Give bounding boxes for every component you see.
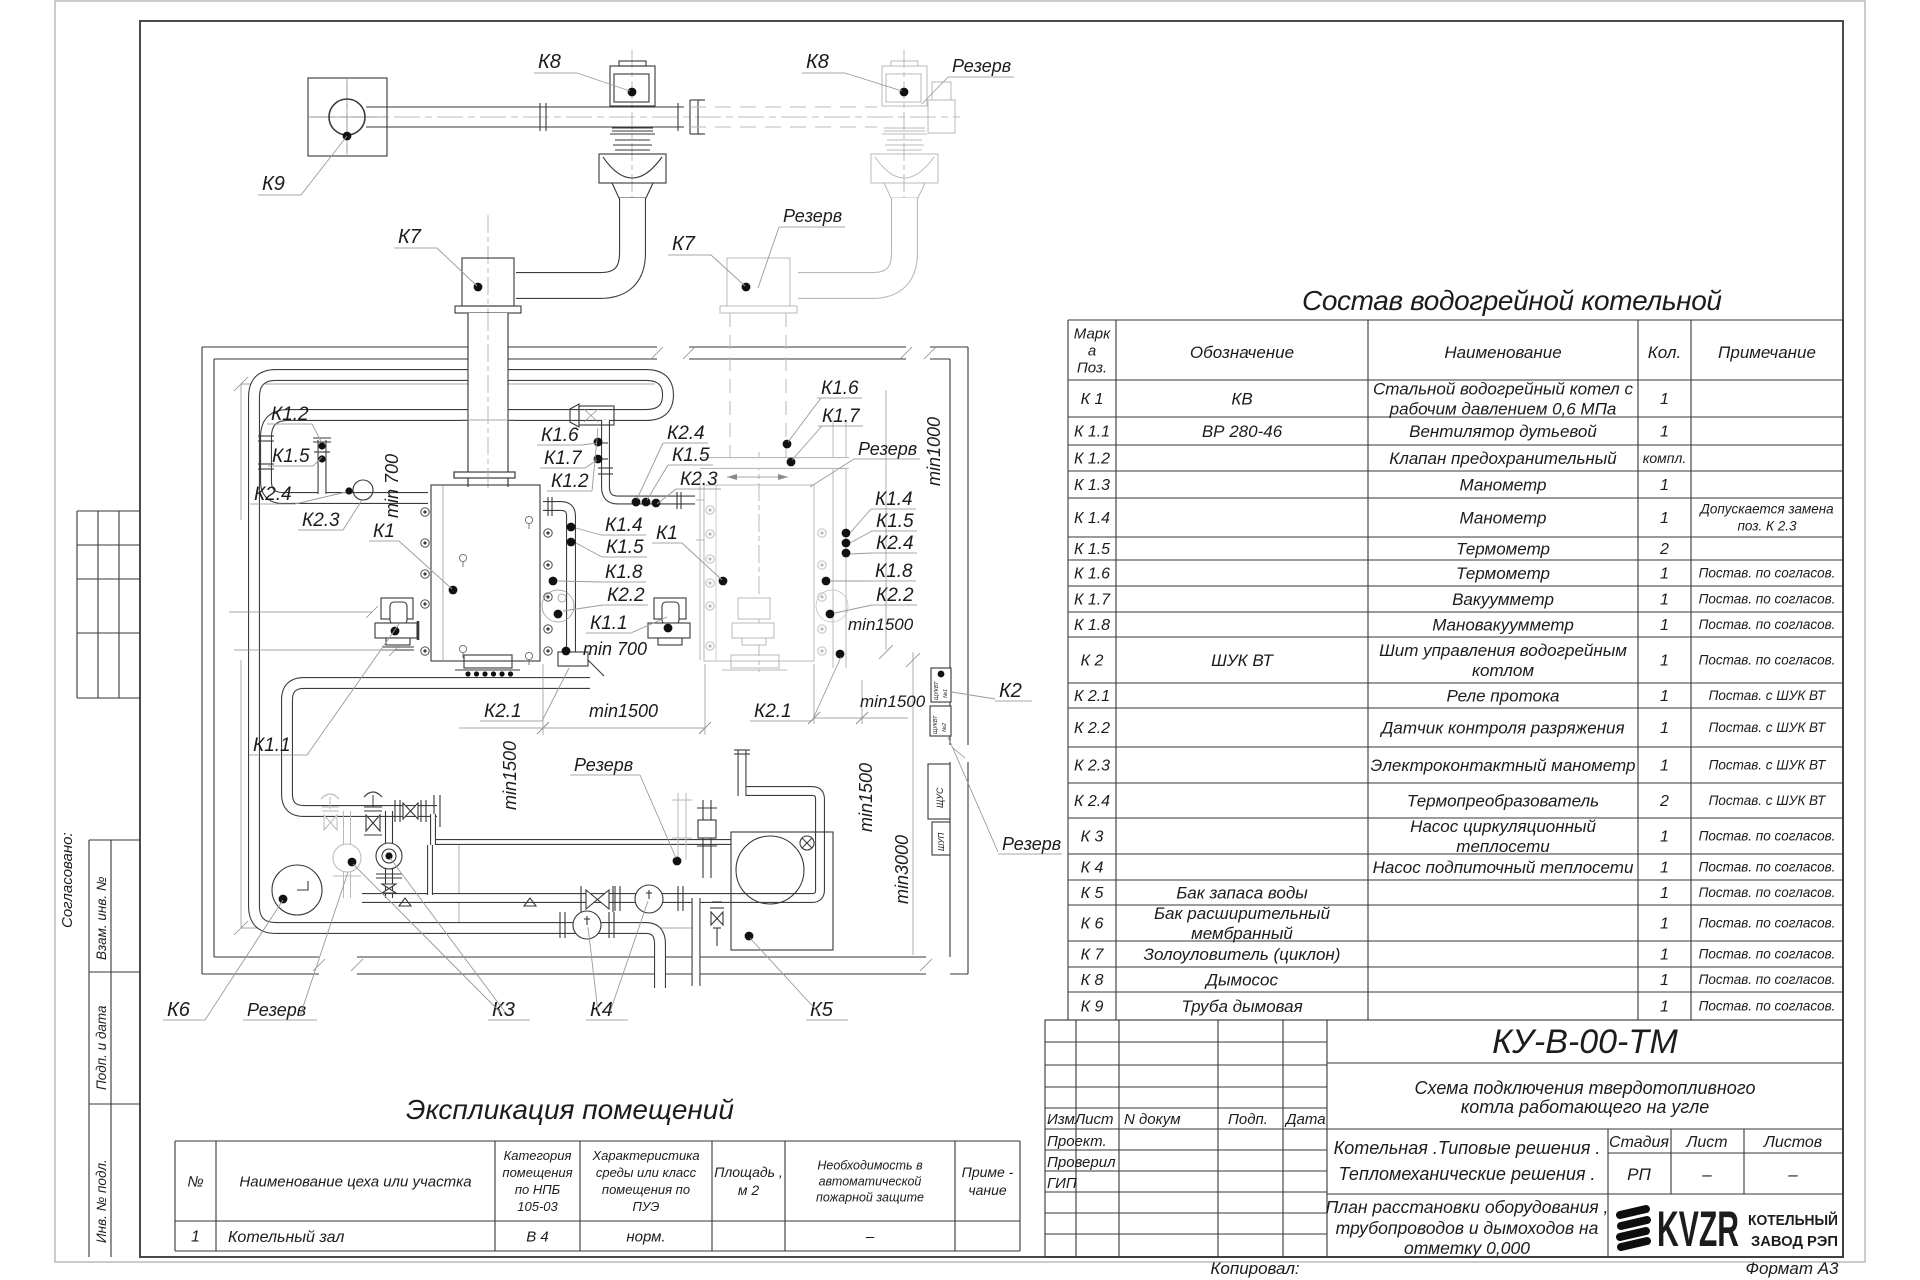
svg-text:Необходимость в: Необходимость в	[817, 1158, 923, 1172]
svg-text:1: 1	[1660, 510, 1669, 527]
svg-text:К 6: К 6	[1081, 916, 1104, 933]
svg-text:ЩУКВТ: ЩУКВТ	[933, 715, 939, 734]
svg-text:ЩУКВТ: ЩУКВТ	[934, 681, 940, 700]
svg-text:котлом: котлом	[1472, 661, 1534, 680]
svg-text:КВ: КВ	[1231, 389, 1252, 408]
svg-text:2: 2	[1659, 541, 1669, 558]
svg-text:Манометр: Манометр	[1460, 475, 1547, 494]
svg-text:Термометр: Термометр	[1456, 564, 1550, 583]
svg-text:Постав. по согласов.: Постав. по согласов.	[1699, 860, 1836, 875]
svg-text:Проверил: Проверил	[1047, 1154, 1116, 1171]
svg-text:К 8: К 8	[1081, 972, 1104, 989]
svg-text:min1500: min1500	[860, 692, 926, 711]
svg-text:трубопроводов и дымоходов на: трубопроводов и дымоходов на	[1336, 1218, 1599, 1238]
svg-text:К2.4: К2.4	[876, 533, 914, 554]
svg-text:1: 1	[1660, 999, 1669, 1016]
svg-text:Тепломеханические решения .: Тепломеханические решения .	[1339, 1164, 1596, 1184]
svg-text:К 2.4: К 2.4	[1074, 793, 1110, 810]
svg-text:1: 1	[1660, 947, 1669, 964]
svg-text:среды или класс: среды или класс	[596, 1165, 697, 1180]
svg-text:1: 1	[1660, 592, 1669, 609]
svg-text:КУ-В-00-ТМ: КУ-В-00-ТМ	[1492, 1023, 1678, 1061]
svg-text:Характеристика: Характеристика	[591, 1148, 699, 1163]
svg-text:пожарной защите: пожарной защите	[816, 1190, 924, 1204]
svg-text:К 2.3: К 2.3	[1074, 758, 1110, 775]
svg-text:К2.4: К2.4	[254, 484, 292, 505]
svg-text:Вакуумметр: Вакуумметр	[1452, 590, 1554, 609]
svg-text:1: 1	[1660, 424, 1669, 441]
svg-text:Постав. с ШУК ВТ: Постав. с ШУК ВТ	[1709, 758, 1828, 773]
svg-text:1: 1	[1660, 860, 1669, 877]
svg-text:Постав. по согласов.: Постав. по согласов.	[1699, 566, 1836, 581]
svg-text:Экспликация помещений: Экспликация помещений	[406, 1094, 734, 1125]
svg-text:–: –	[865, 1228, 875, 1245]
svg-text:К 5: К 5	[1081, 885, 1104, 902]
svg-text:мембранный: мембранный	[1191, 924, 1293, 943]
svg-text:Приме -: Приме -	[962, 1164, 1014, 1180]
svg-text:котла работающего на угле: котла работающего на угле	[1461, 1097, 1710, 1117]
svg-text:min1000: min1000	[924, 417, 944, 486]
svg-text:1: 1	[1660, 617, 1669, 634]
svg-text:Листов: Листов	[1763, 1134, 1822, 1151]
svg-text:а: а	[1088, 342, 1096, 359]
svg-text:К2: К2	[999, 680, 1022, 702]
svg-text:Резерв: Резерв	[1002, 834, 1061, 854]
svg-text:Лист: Лист	[1685, 1134, 1727, 1151]
svg-text:105-03: 105-03	[517, 1199, 558, 1214]
svg-text:Постав. с ШУК ВТ: Постав. с ШУК ВТ	[1709, 793, 1828, 808]
svg-text:К7: К7	[398, 226, 422, 248]
svg-text:К2.4: К2.4	[667, 423, 705, 444]
svg-text:К 1.3: К 1.3	[1074, 477, 1110, 494]
svg-text:К 2.1: К 2.1	[1074, 688, 1110, 705]
svg-text:Кол.: Кол.	[1648, 343, 1681, 362]
svg-text:2: 2	[1659, 793, 1669, 810]
svg-text:помещения по: помещения по	[602, 1182, 690, 1197]
svg-text:К5: К5	[810, 999, 834, 1021]
svg-text:К2.1: К2.1	[484, 701, 522, 722]
svg-text:Подп. и дата: Подп. и дата	[94, 1005, 109, 1090]
svg-text:К 2: К 2	[1081, 653, 1104, 670]
svg-text:min 700: min 700	[583, 639, 647, 659]
svg-text:К 9: К 9	[1081, 999, 1104, 1016]
svg-text:min 700: min 700	[382, 454, 402, 518]
svg-text:К1.2: К1.2	[551, 471, 589, 492]
svg-text:Постав. по согласов.: Постав. по согласов.	[1699, 885, 1836, 900]
svg-text:Подп.: Подп.	[1228, 1111, 1268, 1128]
svg-text:1: 1	[1660, 916, 1669, 933]
svg-text:Манометр: Манометр	[1460, 508, 1547, 527]
svg-text:№2: №2	[942, 723, 948, 732]
svg-text:поз. К 2.3: поз. К 2.3	[1737, 519, 1797, 534]
svg-text:1: 1	[1660, 688, 1669, 705]
svg-text:Проект.: Проект.	[1047, 1133, 1107, 1150]
svg-text:К1.5: К1.5	[876, 511, 914, 532]
svg-text:Допускается замена: Допускается замена	[1698, 502, 1834, 517]
svg-text:К 3: К 3	[1081, 829, 1104, 846]
svg-text:Наименование: Наименование	[1444, 343, 1561, 362]
svg-text:1: 1	[191, 1229, 200, 1246]
svg-text:Котельный зал: Котельный зал	[228, 1229, 344, 1246]
svg-text:Резерв: Резерв	[574, 755, 633, 775]
svg-text:Труба дымовая: Труба дымовая	[1181, 997, 1302, 1016]
svg-text:Состав водогрейной котельной: Состав водогрейной котельной	[1302, 285, 1722, 316]
svg-text:Клапан предохранительный: Клапан предохранительный	[1389, 449, 1617, 468]
svg-text:1: 1	[1660, 972, 1669, 989]
svg-text:Резерв: Резерв	[858, 439, 917, 459]
svg-text:по НПБ: по НПБ	[515, 1182, 561, 1197]
svg-text:Стадия: Стадия	[1609, 1134, 1669, 1151]
svg-text:К1.7: К1.7	[822, 406, 861, 427]
svg-text:К1.6: К1.6	[541, 425, 579, 446]
svg-text:План расстановки оборудования: План расстановки оборудования ,	[1326, 1197, 1609, 1217]
svg-text:Взам. инв. №: Взам. инв. №	[94, 876, 109, 960]
svg-text:Обозначение: Обозначение	[1190, 343, 1294, 362]
svg-text:Насос циркуляционный: Насос циркуляционный	[1410, 817, 1596, 836]
svg-text:Бак запаса воды: Бак запаса воды	[1176, 883, 1308, 902]
svg-text:ПУЭ: ПУЭ	[633, 1199, 660, 1214]
svg-text:Марк: Марк	[1074, 325, 1111, 342]
svg-text:РП: РП	[1627, 1165, 1651, 1184]
svg-text:Мановакуумметр: Мановакуумметр	[1432, 615, 1574, 634]
svg-text:Площадь ,: Площадь ,	[714, 1164, 783, 1180]
svg-text:Дата: Дата	[1284, 1111, 1326, 1128]
svg-text:К2.2: К2.2	[876, 585, 914, 606]
svg-text:К 1.7: К 1.7	[1074, 592, 1111, 609]
svg-text:1: 1	[1660, 885, 1669, 902]
svg-text:К 1.4: К 1.4	[1074, 510, 1110, 527]
svg-text:Насос подпиточный теплосети: Насос подпиточный теплосети	[1373, 858, 1634, 877]
svg-text:ШУП: ШУП	[937, 833, 946, 851]
svg-text:–: –	[1701, 1165, 1712, 1184]
svg-text:Дымосос: Дымосос	[1204, 970, 1279, 989]
svg-text:К1.6: К1.6	[821, 378, 859, 399]
svg-text:Постав. по согласов.: Постав. по согласов.	[1699, 653, 1836, 668]
svg-text:К1.7: К1.7	[544, 448, 583, 469]
svg-text:1: 1	[1660, 829, 1669, 846]
svg-text:К1: К1	[373, 521, 395, 542]
svg-text:ИзмЛист: ИзмЛист	[1047, 1111, 1113, 1128]
svg-text:Копировал:: Копировал:	[1210, 1259, 1300, 1278]
svg-text:Наименование цеха или участка: Наименование цеха или участка	[239, 1173, 471, 1190]
svg-text:1: 1	[1660, 566, 1669, 583]
svg-text:К2.1: К2.1	[754, 701, 792, 722]
svg-text:Резерв: Резерв	[952, 56, 1011, 76]
svg-text:Схема подключения твердотоплив: Схема подключения твердотопливного	[1415, 1078, 1756, 1098]
svg-text:Шит управления водогрейным: Шит управления водогрейным	[1379, 641, 1627, 660]
svg-text:Постав. по согласов.: Постав. по согласов.	[1699, 947, 1836, 962]
svg-text:К1.4: К1.4	[605, 515, 643, 536]
svg-text:Постав. по согласов.: Постав. по согласов.	[1699, 916, 1836, 931]
svg-text:ЩУС: ЩУС	[935, 787, 945, 808]
svg-text:К1.2: К1.2	[271, 404, 309, 425]
svg-text:№: №	[187, 1173, 203, 1190]
svg-text:В 4: В 4	[526, 1228, 549, 1245]
svg-text:min3000: min3000	[892, 835, 912, 904]
svg-text:KVZR: KVZR	[1657, 1201, 1739, 1257]
svg-text:К1.1: К1.1	[590, 613, 628, 634]
svg-text:К 1: К 1	[1081, 391, 1104, 408]
svg-text:Поз.: Поз.	[1077, 359, 1107, 376]
svg-text:К1.5: К1.5	[606, 537, 644, 558]
svg-text:Термометр: Термометр	[1456, 539, 1550, 558]
svg-text:Постав. по согласов.: Постав. по согласов.	[1699, 829, 1836, 844]
svg-text:Примечание: Примечание	[1718, 343, 1816, 362]
svg-text:К2.2: К2.2	[607, 585, 645, 606]
svg-text:1: 1	[1660, 653, 1669, 670]
svg-text:ГИП: ГИП	[1047, 1175, 1077, 1192]
svg-text:Согласовано:: Согласовано:	[59, 832, 76, 928]
svg-text:К1.1: К1.1	[253, 735, 291, 756]
svg-text:К8: К8	[538, 51, 561, 73]
svg-text:min1500: min1500	[848, 615, 914, 634]
svg-text:Бак расширительный: Бак расширительный	[1154, 904, 1331, 923]
svg-text:ВР 280-46: ВР 280-46	[1202, 422, 1283, 441]
svg-text:чание: чание	[968, 1182, 1007, 1198]
svg-text:Датчик контроля разряжения: Датчик контроля разряжения	[1379, 718, 1624, 737]
svg-text:ШУК ВТ: ШУК ВТ	[1211, 651, 1274, 670]
svg-text:Котельная .Типовые решения .: Котельная .Типовые решения .	[1334, 1138, 1601, 1158]
svg-text:К4: К4	[590, 999, 613, 1021]
svg-text:теплосети: теплосети	[1456, 837, 1550, 856]
svg-text:К1: К1	[656, 523, 678, 544]
svg-text:отметку 0,000: отметку 0,000	[1404, 1238, 1530, 1258]
svg-text:К 2.2: К 2.2	[1074, 720, 1110, 737]
svg-text:К 1.1: К 1.1	[1074, 424, 1110, 441]
svg-text:К9: К9	[262, 173, 285, 195]
svg-text:№1: №1	[943, 689, 949, 698]
svg-text:К 4: К 4	[1081, 860, 1104, 877]
svg-text:м 2: м 2	[738, 1182, 759, 1198]
svg-text:К1.8: К1.8	[605, 562, 643, 583]
svg-text:Стальной водогрейный котел с: Стальной водогрейный котел с	[1373, 379, 1633, 398]
svg-text:К1.5: К1.5	[672, 445, 710, 466]
svg-text:Реле протока: Реле протока	[1447, 686, 1560, 705]
svg-text:К 1.6: К 1.6	[1074, 566, 1110, 583]
svg-text:К 1.8: К 1.8	[1074, 617, 1110, 634]
svg-text:К 7: К 7	[1081, 947, 1105, 964]
svg-text:Категория: Категория	[504, 1148, 572, 1163]
svg-text:К8: К8	[806, 51, 829, 73]
svg-text:Постав. по согласов.: Постав. по согласов.	[1699, 592, 1836, 607]
svg-text:1: 1	[1660, 477, 1669, 494]
svg-text:КОТЕЛЬНЫЙ: КОТЕЛЬНЫЙ	[1748, 1211, 1838, 1229]
svg-text:Постав. с ШУК ВТ: Постав. с ШУК ВТ	[1709, 688, 1828, 703]
svg-text:Постав. по согласов.: Постав. по согласов.	[1699, 999, 1836, 1014]
svg-text:Инв. № подл.: Инв. № подл.	[94, 1159, 109, 1243]
svg-text:Постав. по согласов.: Постав. по согласов.	[1699, 972, 1836, 987]
svg-text:норм.: норм.	[626, 1228, 665, 1245]
svg-text:1: 1	[1660, 758, 1669, 775]
svg-text:К1.8: К1.8	[875, 561, 913, 582]
svg-text:К1.5: К1.5	[272, 446, 310, 467]
svg-text:помещения: помещения	[502, 1165, 572, 1180]
svg-text:К 1.5: К 1.5	[1074, 541, 1110, 558]
svg-text:Золоуловитель (циклон): Золоуловитель (циклон)	[1144, 945, 1341, 964]
svg-text:min1500: min1500	[589, 701, 658, 721]
svg-text:К2.3: К2.3	[680, 469, 718, 490]
svg-text:компл.: компл.	[1643, 450, 1686, 466]
svg-text:1: 1	[1660, 720, 1669, 737]
svg-text:1: 1	[1660, 391, 1669, 408]
svg-text:Постав. с ШУК ВТ: Постав. с ШУК ВТ	[1709, 720, 1828, 735]
svg-text:min1500: min1500	[856, 763, 876, 832]
svg-text:Термопреобразователь: Термопреобразователь	[1407, 791, 1599, 810]
svg-text:автоматической: автоматической	[819, 1174, 922, 1188]
svg-text:min1500: min1500	[500, 741, 520, 810]
svg-text:К1.4: К1.4	[875, 489, 913, 510]
svg-text:Резерв: Резерв	[247, 1000, 306, 1020]
svg-text:Постав. по согласов.: Постав. по согласов.	[1699, 617, 1836, 632]
svg-text:–: –	[1787, 1165, 1798, 1184]
svg-text:Электроконтактный манометр: Электроконтактный манометр	[1371, 756, 1636, 775]
svg-text:К 1.2: К 1.2	[1074, 451, 1110, 468]
svg-text:Формат А3: Формат А3	[1745, 1259, 1839, 1278]
svg-text:К7: К7	[672, 233, 696, 255]
svg-text:К6: К6	[167, 999, 191, 1021]
svg-text:N докум: N докум	[1124, 1111, 1181, 1128]
svg-text:Резерв: Резерв	[783, 206, 842, 226]
svg-text:ЗАВОД РЭП: ЗАВОД РЭП	[1751, 1234, 1838, 1250]
svg-text:Вентилятор дутьевой: Вентилятор дутьевой	[1409, 422, 1597, 441]
svg-text:рабочим давлением 0,6 МПа: рабочим давлением 0,6 МПа	[1389, 399, 1617, 418]
svg-text:К2.3: К2.3	[302, 510, 340, 531]
